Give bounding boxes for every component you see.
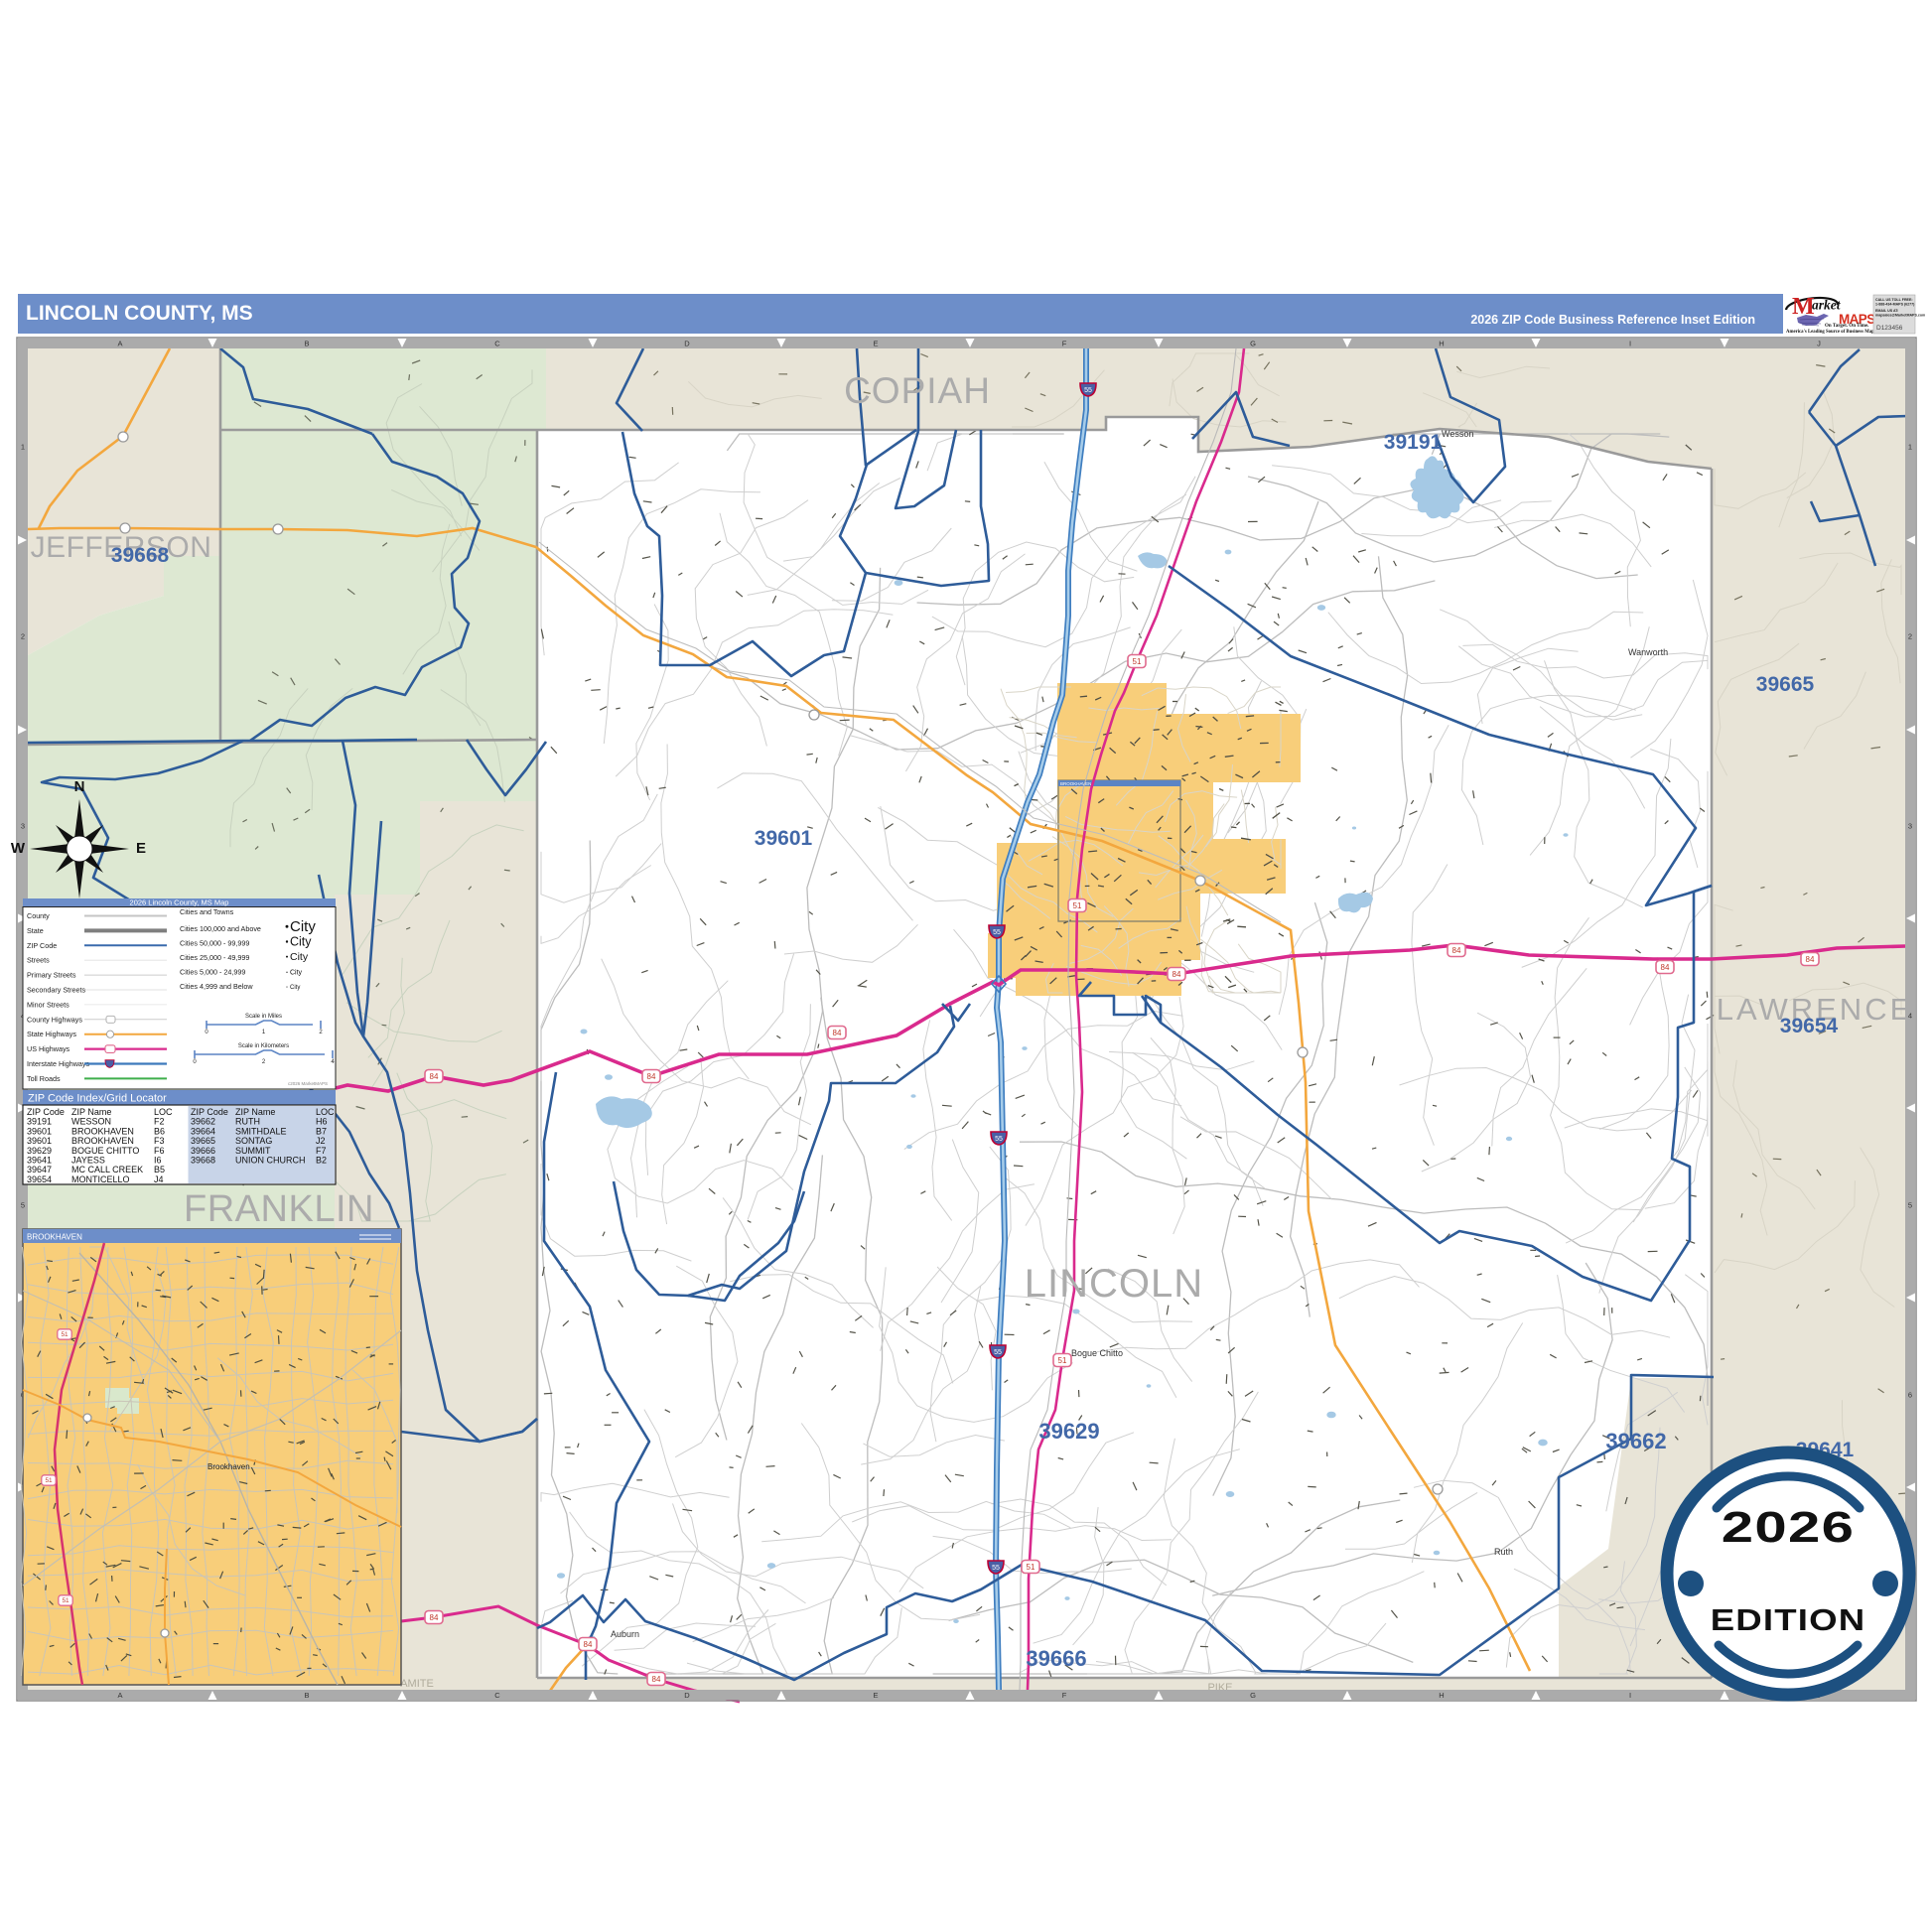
svg-text:51: 51 xyxy=(62,1597,69,1604)
svg-text:WESSON: WESSON xyxy=(71,1117,111,1127)
svg-text:3: 3 xyxy=(21,822,25,831)
svg-text:39629: 39629 xyxy=(27,1146,52,1156)
svg-text:Cities 25,000 - 49,999: Cities 25,000 - 49,999 xyxy=(180,953,249,962)
svg-text:J: J xyxy=(1817,340,1821,348)
svg-text:Cities 4,999 and Below: Cities 4,999 and Below xyxy=(180,982,253,991)
svg-text:4: 4 xyxy=(1908,1012,1912,1021)
svg-text:39662: 39662 xyxy=(1605,1429,1666,1453)
svg-text:BOGUE CHITTO: BOGUE CHITTO xyxy=(71,1146,139,1156)
svg-text:B: B xyxy=(304,340,309,348)
svg-text:RUTH: RUTH xyxy=(235,1117,260,1127)
svg-text:5: 5 xyxy=(21,1201,25,1210)
svg-text:City: City xyxy=(290,918,316,935)
svg-text:39191: 39191 xyxy=(27,1117,52,1127)
svg-text:Brookhaven: Brookhaven xyxy=(207,1462,250,1471)
svg-text:Streets: Streets xyxy=(27,956,50,965)
svg-text:ZIP Code Index/Grid Locator: ZIP Code Index/Grid Locator xyxy=(28,1093,167,1105)
svg-text:39629: 39629 xyxy=(1038,1419,1099,1444)
svg-text:Interstate Highways: Interstate Highways xyxy=(27,1059,90,1068)
svg-text:Toll Roads: Toll Roads xyxy=(27,1074,61,1083)
svg-text:39647: 39647 xyxy=(27,1165,52,1174)
svg-text:ZIP Code: ZIP Code xyxy=(27,1107,65,1117)
svg-text:State: State xyxy=(27,926,44,935)
svg-text:84: 84 xyxy=(652,1675,661,1684)
svg-text:EMAIL US AT:: EMAIL US AT: xyxy=(1875,309,1898,313)
svg-text:ZIP Name: ZIP Name xyxy=(235,1107,275,1117)
svg-text:c2026 MarketMAPS: c2026 MarketMAPS xyxy=(288,1081,328,1086)
svg-text:US Highways: US Highways xyxy=(27,1044,70,1053)
svg-text:3: 3 xyxy=(1908,822,1912,831)
svg-text:Primary Streets: Primary Streets xyxy=(27,971,76,980)
svg-text:6: 6 xyxy=(1908,1391,1912,1400)
svg-text:D: D xyxy=(684,1691,690,1700)
svg-text:H: H xyxy=(1439,1691,1444,1700)
svg-text:E: E xyxy=(136,840,146,857)
svg-text:CALL US TOLL FREE:: CALL US TOLL FREE: xyxy=(1875,298,1913,302)
svg-text:City: City xyxy=(290,935,312,949)
svg-text:39666: 39666 xyxy=(191,1146,215,1156)
svg-text:51: 51 xyxy=(45,1477,53,1484)
svg-text:Cities 5,000 - 24,999: Cities 5,000 - 24,999 xyxy=(180,968,245,977)
svg-text:51: 51 xyxy=(1058,1356,1067,1365)
svg-text:51: 51 xyxy=(61,1331,69,1338)
svg-text:84: 84 xyxy=(1173,970,1181,979)
svg-text:A: A xyxy=(117,340,122,348)
svg-text:On Target. On Time.: On Target. On Time. xyxy=(1825,324,1869,329)
svg-text:City: City xyxy=(290,985,300,991)
svg-text:I6: I6 xyxy=(154,1156,162,1166)
svg-text:City: City xyxy=(290,951,309,963)
svg-text:BROOKHAVEN: BROOKHAVEN xyxy=(1060,781,1091,786)
svg-text:Minor Streets: Minor Streets xyxy=(27,1000,69,1009)
svg-text:SMITHDALE: SMITHDALE xyxy=(235,1126,287,1136)
svg-text:39668: 39668 xyxy=(111,544,170,567)
svg-text:Secondary Streets: Secondary Streets xyxy=(27,986,86,995)
svg-text:1: 1 xyxy=(1908,443,1912,452)
svg-text:84: 84 xyxy=(647,1072,656,1081)
svg-text:Cities 50,000 - 99,999: Cities 50,000 - 99,999 xyxy=(180,939,249,948)
svg-text:E: E xyxy=(873,1691,878,1700)
svg-text:55: 55 xyxy=(1084,387,1092,394)
svg-text:B: B xyxy=(304,1691,309,1700)
svg-text:G: G xyxy=(1250,340,1256,348)
svg-text:F3: F3 xyxy=(154,1136,165,1146)
svg-text:55: 55 xyxy=(994,1349,1002,1356)
svg-text:H6: H6 xyxy=(316,1117,328,1127)
svg-text:Cities 100,000 and Above: Cities 100,000 and Above xyxy=(180,924,261,933)
svg-text:Wesson: Wesson xyxy=(1442,429,1473,439)
svg-text:39665: 39665 xyxy=(1756,673,1815,696)
svg-text:LINCOLN: LINCOLN xyxy=(1025,1262,1203,1306)
svg-text:AMITE: AMITE xyxy=(400,1678,434,1690)
svg-text:SUMMIT: SUMMIT xyxy=(235,1146,271,1156)
svg-text:51: 51 xyxy=(1027,1563,1035,1572)
svg-text:39654: 39654 xyxy=(1780,1015,1839,1037)
svg-text:F6: F6 xyxy=(154,1146,165,1156)
svg-text:51: 51 xyxy=(1133,657,1142,666)
svg-text:arket: arket xyxy=(1812,298,1842,313)
svg-text:39664: 39664 xyxy=(191,1126,215,1136)
svg-text:39601: 39601 xyxy=(755,827,813,850)
svg-text:I: I xyxy=(1629,340,1631,348)
svg-text:SONTAG: SONTAG xyxy=(235,1136,272,1146)
svg-text:A: A xyxy=(117,1691,122,1700)
svg-text:E: E xyxy=(873,340,878,348)
svg-text:2: 2 xyxy=(1908,632,1912,641)
svg-text:39665: 39665 xyxy=(191,1136,215,1146)
svg-text:84: 84 xyxy=(1806,955,1815,964)
svg-text:5: 5 xyxy=(1908,1201,1912,1210)
svg-text:UNION CHURCH: UNION CHURCH xyxy=(235,1156,306,1166)
svg-text:ZIP Name: ZIP Name xyxy=(71,1107,111,1117)
svg-text:County Highways: County Highways xyxy=(27,1015,82,1024)
svg-text:MC CALL CREEK: MC CALL CREEK xyxy=(71,1165,143,1174)
svg-text:1-888-434-MAPS (6277): 1-888-434-MAPS (6277) xyxy=(1875,303,1915,307)
svg-text:B7: B7 xyxy=(316,1126,327,1136)
svg-text:G: G xyxy=(1250,1691,1256,1700)
svg-text:2: 2 xyxy=(21,632,25,641)
svg-text:JAYESS: JAYESS xyxy=(71,1156,105,1166)
svg-text:Cities and Towns: Cities and Towns xyxy=(180,907,234,916)
svg-text:BROOKHAVEN: BROOKHAVEN xyxy=(71,1136,134,1146)
svg-text:mapsales@MarketMAPS.com: mapsales@MarketMAPS.com xyxy=(1875,314,1925,318)
svg-text:84: 84 xyxy=(833,1029,842,1037)
svg-text:City: City xyxy=(290,970,303,977)
svg-text:B6: B6 xyxy=(154,1126,165,1136)
svg-text:84: 84 xyxy=(584,1640,593,1649)
svg-text:C: C xyxy=(494,340,500,348)
svg-text:84: 84 xyxy=(1661,963,1670,972)
svg-text:Ruth: Ruth xyxy=(1494,1547,1513,1557)
svg-text:B2: B2 xyxy=(316,1156,327,1166)
svg-text:55: 55 xyxy=(993,929,1001,936)
svg-text:LOC: LOC xyxy=(316,1107,335,1117)
svg-text:55: 55 xyxy=(995,1136,1003,1143)
svg-text:FRANKLIN: FRANKLIN xyxy=(184,1188,374,1230)
svg-text:BROOKHAVEN: BROOKHAVEN xyxy=(27,1233,82,1242)
svg-text:39654: 39654 xyxy=(27,1174,52,1184)
svg-text:39666: 39666 xyxy=(1026,1646,1086,1671)
svg-text:Auburn: Auburn xyxy=(611,1629,639,1639)
svg-text:Scale in Kilometers: Scale in Kilometers xyxy=(238,1043,289,1049)
svg-text:1: 1 xyxy=(21,443,25,452)
svg-text:N: N xyxy=(74,778,85,795)
svg-text:Bogue Chitto: Bogue Chitto xyxy=(1071,1348,1123,1358)
svg-text:COPIAH: COPIAH xyxy=(844,370,991,411)
svg-text:BROOKHAVEN: BROOKHAVEN xyxy=(71,1126,134,1136)
svg-text:F2: F2 xyxy=(154,1117,165,1127)
svg-text:D: D xyxy=(684,340,690,348)
svg-text:State Highways: State Highways xyxy=(27,1030,76,1038)
svg-text:MONTICELLO: MONTICELLO xyxy=(71,1174,130,1184)
svg-text:F: F xyxy=(1062,340,1067,348)
svg-text:39601: 39601 xyxy=(27,1126,52,1136)
svg-text:39668: 39668 xyxy=(191,1156,215,1166)
svg-text:H: H xyxy=(1439,340,1444,348)
svg-text:LINCOLN COUNTY, MS: LINCOLN COUNTY, MS xyxy=(26,302,253,325)
svg-text:W: W xyxy=(11,840,26,857)
svg-text:ZIP Code: ZIP Code xyxy=(27,941,57,950)
svg-text:84: 84 xyxy=(430,1613,439,1622)
svg-text:2026: 2026 xyxy=(1722,1502,1855,1552)
svg-text:EDITION: EDITION xyxy=(1711,1603,1866,1638)
svg-text:39191: 39191 xyxy=(1384,431,1443,454)
svg-text:39601: 39601 xyxy=(27,1136,52,1146)
svg-text:39641: 39641 xyxy=(27,1156,52,1166)
svg-text:84: 84 xyxy=(430,1072,439,1081)
svg-text:J2: J2 xyxy=(316,1136,326,1146)
svg-text:J4: J4 xyxy=(154,1174,164,1184)
svg-text:Scale in Miles: Scale in Miles xyxy=(245,1014,282,1020)
svg-text:I: I xyxy=(1629,1691,1631,1700)
svg-text:2026 Lincoln County, MS Map: 2026 Lincoln County, MS Map xyxy=(130,898,229,907)
svg-text:LOC: LOC xyxy=(154,1107,173,1117)
svg-text:39662: 39662 xyxy=(191,1117,215,1127)
svg-text:Wanworth: Wanworth xyxy=(1628,647,1668,657)
svg-text:B5: B5 xyxy=(154,1165,165,1174)
svg-text:D123456: D123456 xyxy=(1876,325,1903,332)
svg-text:C: C xyxy=(494,1691,500,1700)
svg-text:F7: F7 xyxy=(316,1146,327,1156)
svg-text:84: 84 xyxy=(1452,946,1461,955)
svg-text:ZIP Code: ZIP Code xyxy=(191,1107,228,1117)
svg-text:County: County xyxy=(27,911,50,920)
svg-text:2026 ZIP Code Business Referen: 2026 ZIP Code Business Reference Inset E… xyxy=(1470,313,1755,327)
svg-text:America's Leading Source of B: America's Leading Source of Business Map… xyxy=(1786,330,1876,335)
svg-text:51: 51 xyxy=(1073,901,1082,910)
svg-text:55: 55 xyxy=(992,1565,1000,1572)
svg-text:F: F xyxy=(1062,1691,1067,1700)
